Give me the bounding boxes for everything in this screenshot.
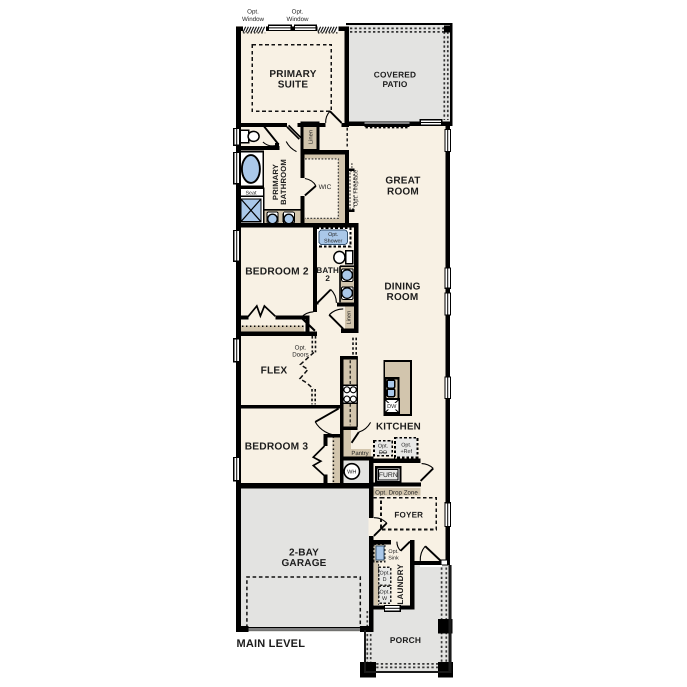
svg-text:KITCHEN: KITCHEN [376, 422, 421, 433]
svg-text:Pantry: Pantry [351, 450, 368, 457]
svg-text:Opt.: Opt. [292, 9, 304, 16]
svg-text:DINING: DINING [384, 282, 420, 293]
svg-text:DW: DW [387, 404, 397, 410]
svg-text:GARAGE: GARAGE [281, 558, 326, 569]
svg-text:Opt.: Opt. [328, 232, 338, 238]
svg-text:MAIN LEVEL: MAIN LEVEL [237, 638, 306, 650]
svg-text:W: W [382, 596, 388, 602]
svg-text:DO: DO [379, 450, 387, 456]
svg-text:+Ref: +Ref [401, 449, 413, 455]
svg-text:PORCH: PORCH [390, 635, 421, 645]
svg-text:GREAT: GREAT [385, 175, 420, 186]
svg-text:FLEX: FLEX [261, 366, 288, 377]
svg-text:BEDROOM 2: BEDROOM 2 [245, 267, 309, 278]
svg-text:COVERED: COVERED [374, 69, 416, 79]
svg-text:Opt.: Opt. [247, 9, 259, 16]
svg-text:WH: WH [347, 470, 356, 476]
svg-text:PRIMARY: PRIMARY [269, 69, 316, 80]
svg-text:Opt. Fireplace: Opt. Fireplace [353, 170, 360, 206]
svg-text:Opt.: Opt. [378, 443, 388, 449]
svg-text:2: 2 [325, 274, 330, 283]
svg-text:2-BAY: 2-BAY [289, 548, 319, 559]
svg-text:Opt.: Opt. [401, 442, 411, 448]
svg-text:PATIO: PATIO [382, 79, 407, 89]
svg-text:Linen: Linen [307, 130, 314, 144]
svg-text:Opt.: Opt. [380, 571, 390, 577]
svg-text:Opt.: Opt. [388, 549, 398, 555]
svg-text:Shower: Shower [324, 239, 342, 245]
svg-text:Doors: Doors [292, 352, 309, 359]
svg-text:Opt. Drop Zone: Opt. Drop Zone [375, 490, 418, 497]
svg-text:FURN: FURN [379, 472, 398, 479]
svg-text:LAUNDRY: LAUNDRY [396, 564, 405, 605]
svg-text:D: D [383, 577, 387, 583]
svg-text:Window: Window [286, 16, 309, 23]
svg-text:ROOM: ROOM [387, 186, 419, 197]
svg-text:Sink: Sink [388, 555, 399, 561]
svg-text:WIC: WIC [319, 184, 332, 191]
svg-text:SUITE: SUITE [278, 80, 309, 91]
svg-text:Opt.: Opt. [380, 589, 390, 595]
svg-text:Linen: Linen [346, 311, 353, 325]
svg-text:Window: Window [242, 16, 265, 23]
svg-text:BEDROOM 3: BEDROOM 3 [245, 442, 309, 453]
svg-text:ROOM: ROOM [387, 292, 419, 303]
svg-text:BATHROOM: BATHROOM [279, 159, 288, 205]
svg-text:FOYER: FOYER [394, 510, 423, 519]
svg-text:Opt.: Opt. [295, 344, 307, 351]
